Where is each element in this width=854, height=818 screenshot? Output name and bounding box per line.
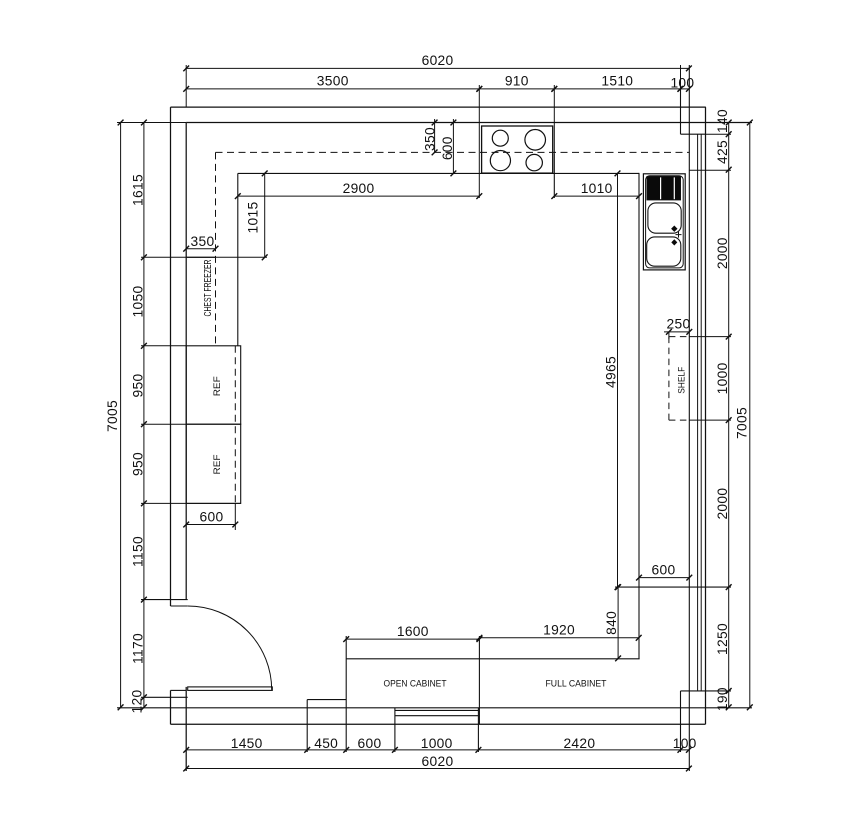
svg-text:1920: 1920 — [543, 623, 575, 638]
svg-text:REF: REF — [212, 454, 223, 474]
svg-text:600: 600 — [358, 736, 382, 751]
svg-text:REF: REF — [212, 376, 223, 396]
svg-text:OPEN CABINET: OPEN CABINET — [384, 678, 447, 688]
svg-text:7005: 7005 — [734, 407, 749, 439]
svg-text:425: 425 — [715, 140, 730, 164]
svg-text:190: 190 — [715, 687, 730, 711]
svg-text:250: 250 — [667, 317, 691, 332]
svg-text:600: 600 — [652, 562, 676, 577]
svg-text:1010: 1010 — [581, 181, 613, 196]
svg-text:1615: 1615 — [131, 174, 146, 206]
svg-text:6020: 6020 — [422, 53, 454, 68]
svg-text:2420: 2420 — [563, 736, 595, 751]
svg-text:840: 840 — [604, 611, 619, 635]
svg-text:140: 140 — [715, 109, 730, 133]
svg-text:350: 350 — [191, 234, 215, 249]
svg-text:6020: 6020 — [422, 754, 454, 769]
svg-text:SHELF: SHELF — [676, 366, 686, 393]
svg-text:910: 910 — [505, 74, 529, 89]
svg-text:7005: 7005 — [105, 400, 120, 432]
svg-text:4965: 4965 — [604, 356, 619, 388]
svg-text:1250: 1250 — [715, 623, 730, 655]
svg-text:950: 950 — [131, 452, 146, 476]
svg-text:1000: 1000 — [715, 362, 730, 394]
svg-text:1450: 1450 — [231, 736, 263, 751]
svg-text:600: 600 — [440, 136, 455, 160]
svg-text:1150: 1150 — [131, 536, 146, 567]
svg-text:950: 950 — [131, 374, 146, 398]
svg-text:3500: 3500 — [317, 74, 349, 89]
svg-text:FULL CABINET: FULL CABINET — [546, 678, 607, 688]
svg-text:1600: 1600 — [397, 624, 429, 639]
svg-text:2000: 2000 — [715, 488, 730, 520]
svg-text:100: 100 — [673, 736, 697, 751]
svg-text:2000: 2000 — [715, 237, 730, 269]
svg-text:120: 120 — [130, 690, 145, 714]
svg-text:1170: 1170 — [131, 633, 146, 664]
svg-text:1510: 1510 — [601, 74, 633, 89]
svg-text:1050: 1050 — [131, 286, 146, 318]
svg-text:450: 450 — [314, 736, 338, 751]
svg-text:350: 350 — [422, 127, 437, 151]
svg-text:CHEST FREEZER: CHEST FREEZER — [203, 260, 214, 317]
svg-text:600: 600 — [200, 510, 224, 525]
svg-text:1000: 1000 — [421, 736, 453, 751]
svg-text:1015: 1015 — [246, 202, 261, 234]
svg-text:100: 100 — [670, 75, 694, 90]
svg-text:2900: 2900 — [343, 181, 375, 196]
